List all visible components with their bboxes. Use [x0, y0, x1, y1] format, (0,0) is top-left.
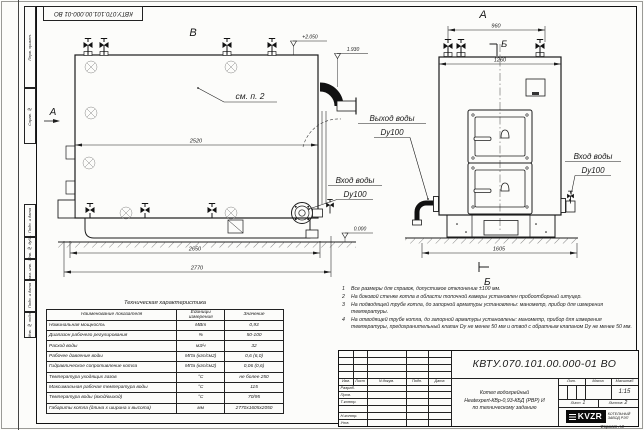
format-label: Формат А3 — [583, 424, 641, 429]
row-razrab: Разраб. — [341, 385, 367, 392]
view-a-arrowhead — [53, 119, 60, 123]
base-box-diagonal — [228, 220, 243, 233]
door-handle — [474, 137, 491, 141]
control-panel-slot — [532, 92, 539, 95]
title-block: Изм. Лист N докум. Подп. Дата Разраб. Пр… — [338, 350, 639, 427]
mount-point-icon — [225, 207, 237, 219]
document-designation: КВТУ.070.101.00.000-01 ВО — [451, 351, 638, 378]
base-frame-side — [85, 218, 310, 238]
note-item: 2На боковой стенке котла в области топоч… — [342, 294, 634, 301]
chimney-elbow — [320, 87, 339, 106]
lit-label: Лит. — [558, 378, 585, 385]
note-item: 3На подводящей трубе котла, до запорной … — [342, 302, 634, 316]
drawing-sheet: КВТУ.070.101.00.000-01 ВО Перв. примен. … — [0, 0, 644, 430]
col-list: Лист — [353, 378, 367, 385]
row-nkontr: Н.контр. — [341, 412, 367, 419]
dim-960: 960 — [491, 24, 501, 30]
door-latch-icon — [501, 130, 509, 138]
side-view — [44, 39, 382, 278]
ground-hatch-front — [405, 238, 578, 244]
row-tkontr: Т.контр. — [341, 398, 367, 405]
spec-table: Наименование показателя Единицы измерени… — [46, 309, 284, 415]
dim-2770: 2770 — [190, 266, 204, 272]
row-utv: Утв. — [341, 419, 367, 426]
door-latch-icon — [501, 183, 509, 191]
drain-valve-icon — [208, 204, 217, 219]
col-podp: Подп. — [406, 378, 428, 385]
inlet-dn-front: Dy100 — [581, 166, 605, 175]
mount-point-icon — [120, 207, 132, 219]
inlet-pipe — [313, 209, 323, 217]
spec-row: Расход водым3/ч32 — [47, 341, 284, 351]
sheets-cell: Листов 2 — [598, 399, 638, 407]
spec-row: Температура воды (вход/выход)°С70/95 — [47, 393, 284, 403]
spec-row: Номинальная мощностьМВт0,93 — [47, 320, 284, 330]
outlet-dn: Dy100 — [380, 128, 404, 137]
inlet-label-side: Вход воды — [336, 176, 375, 185]
section-b-label-top: Б — [501, 39, 507, 50]
row-prov: Пров. — [341, 391, 367, 398]
base-dividers — [472, 215, 530, 237]
rear-pipe — [322, 111, 326, 204]
outlet-label: Выход воды — [370, 114, 415, 123]
dim-2650: 2650 — [188, 247, 202, 253]
view-a-direction-label: А — [49, 107, 57, 118]
mount-point-icon — [83, 157, 95, 169]
company-cell: KVZR КОТЕЛЬНЫЙ ЗАВОД РЭП — [558, 407, 638, 426]
level-marks — [291, 41, 374, 242]
level-top: +2.050 — [302, 35, 318, 41]
leader-dot — [308, 208, 310, 210]
document-name: Котел водогрейный Heatexpert-КВр-0,93-КБ… — [451, 378, 558, 426]
spec-row: Диапазон рабочего регулирования%50-100 — [47, 330, 284, 340]
door-handle — [474, 189, 491, 193]
inlet-dn-side: Dy100 — [343, 190, 367, 199]
side-hinge-1 — [66, 146, 75, 159]
ground-hatch-side — [58, 242, 356, 248]
scale-value: 1:15 — [611, 385, 638, 400]
base-frame-front — [447, 215, 555, 237]
drain-valve-icon — [141, 204, 150, 219]
side-hinge-2 — [66, 181, 75, 194]
level-chimney: 1.930 — [347, 47, 360, 53]
mount-point-icon — [85, 61, 97, 73]
inlet-label-front: Вход воды — [574, 152, 613, 161]
base-center-plate — [484, 221, 518, 236]
leader-dot — [197, 87, 199, 89]
level-ground: 0.000 — [354, 227, 367, 233]
kvzr-logo: KVZR — [566, 410, 606, 423]
notes-list: 1Все размеры для справок, допустимое отк… — [342, 286, 634, 332]
row-blank — [341, 405, 367, 412]
see-note-ref: см. п. 2 — [236, 91, 265, 101]
front-view — [358, 26, 621, 272]
base-foot — [306, 230, 318, 238]
dim-1605: 1605 — [493, 247, 506, 253]
mount-point-icon — [225, 61, 237, 73]
col-ndocum: N докум. — [367, 378, 406, 385]
leader-dot — [569, 199, 571, 201]
inlet-flange-side — [292, 203, 313, 224]
spec-row: Рабочее давление водыМПа (кгс/см2)0,6 (6… — [47, 351, 284, 361]
section-b-mark-bottom — [479, 262, 489, 272]
spec-section: Техническая характеристика Наименование … — [46, 300, 284, 414]
sheet-cell: Лист 1 — [558, 399, 598, 407]
scale-label: Масштаб — [611, 378, 638, 385]
note-item: 1Все размеры для справок, допустимое отк… — [342, 286, 634, 293]
dim-1260: 1260 — [494, 58, 507, 64]
boiler-body-side — [75, 55, 318, 218]
dim-2520: 2520 — [189, 139, 203, 145]
outlet-elbow — [417, 203, 433, 220]
mount-point-icon — [85, 107, 97, 119]
view-b-label: В — [189, 27, 196, 39]
col-data: Дата — [428, 378, 451, 385]
spec-row: Максимальная рабочая температура воды°С1… — [47, 382, 284, 392]
spec-title: Техническая характеристика — [46, 300, 284, 306]
spec-header-row: Наименование показателя Единицы измерени… — [47, 309, 284, 320]
col-izm: Изм. — [339, 378, 353, 385]
spec-row: Температура уходящих газов°Сне более 250 — [47, 372, 284, 382]
base-bolts — [456, 223, 547, 233]
note-item: 4На отводящей трубе котла, до запорной а… — [342, 317, 634, 331]
inlet-flange-front — [561, 199, 566, 213]
view-a-label: А — [478, 9, 486, 21]
outlet-foot — [413, 220, 422, 225]
spec-row: Гидравлическое сопротивление котлаМПа (к… — [47, 362, 284, 372]
outlet-flange — [434, 197, 439, 212]
logo-stripes-icon — [569, 412, 576, 420]
section-b-mark-top — [490, 44, 498, 56]
spec-row: Габариты котла (длина х ширина х высота)… — [47, 403, 284, 413]
company-name: КОТЕЛЬНЫЙ ЗАВОД РЭП — [608, 412, 631, 421]
chimney-stub — [337, 101, 356, 111]
burner-mount — [58, 200, 75, 218]
side-dimensions — [64, 144, 331, 278]
leader-dot — [427, 198, 429, 200]
mass-label: Масса — [585, 378, 611, 385]
drain-valve-icon — [86, 204, 95, 219]
